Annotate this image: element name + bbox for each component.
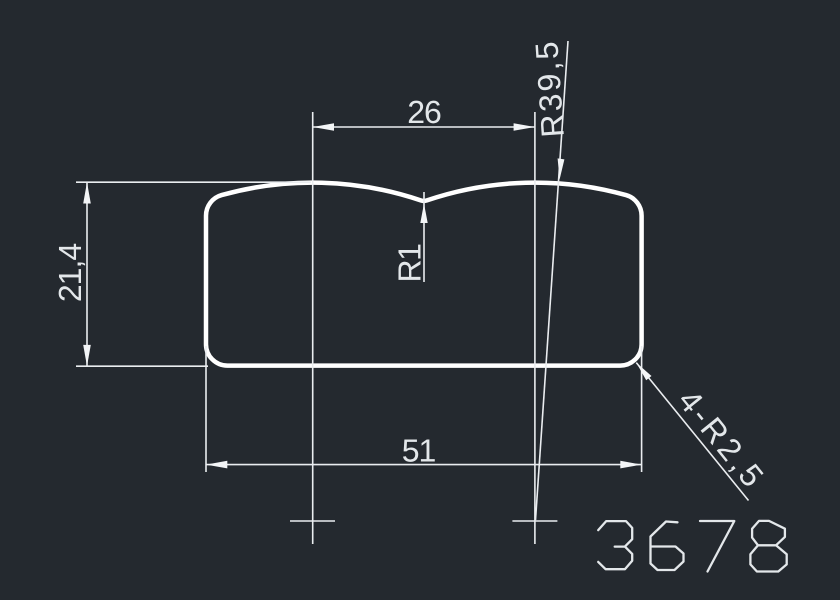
svg-text:26: 26 bbox=[407, 94, 441, 130]
svg-text:4-R2,5: 4-R2,5 bbox=[671, 383, 773, 497]
svg-text:51: 51 bbox=[402, 433, 436, 469]
svg-text:R39,5: R39,5 bbox=[528, 38, 571, 139]
svg-text:21,4: 21,4 bbox=[52, 244, 88, 302]
svg-text:R1: R1 bbox=[392, 244, 428, 283]
